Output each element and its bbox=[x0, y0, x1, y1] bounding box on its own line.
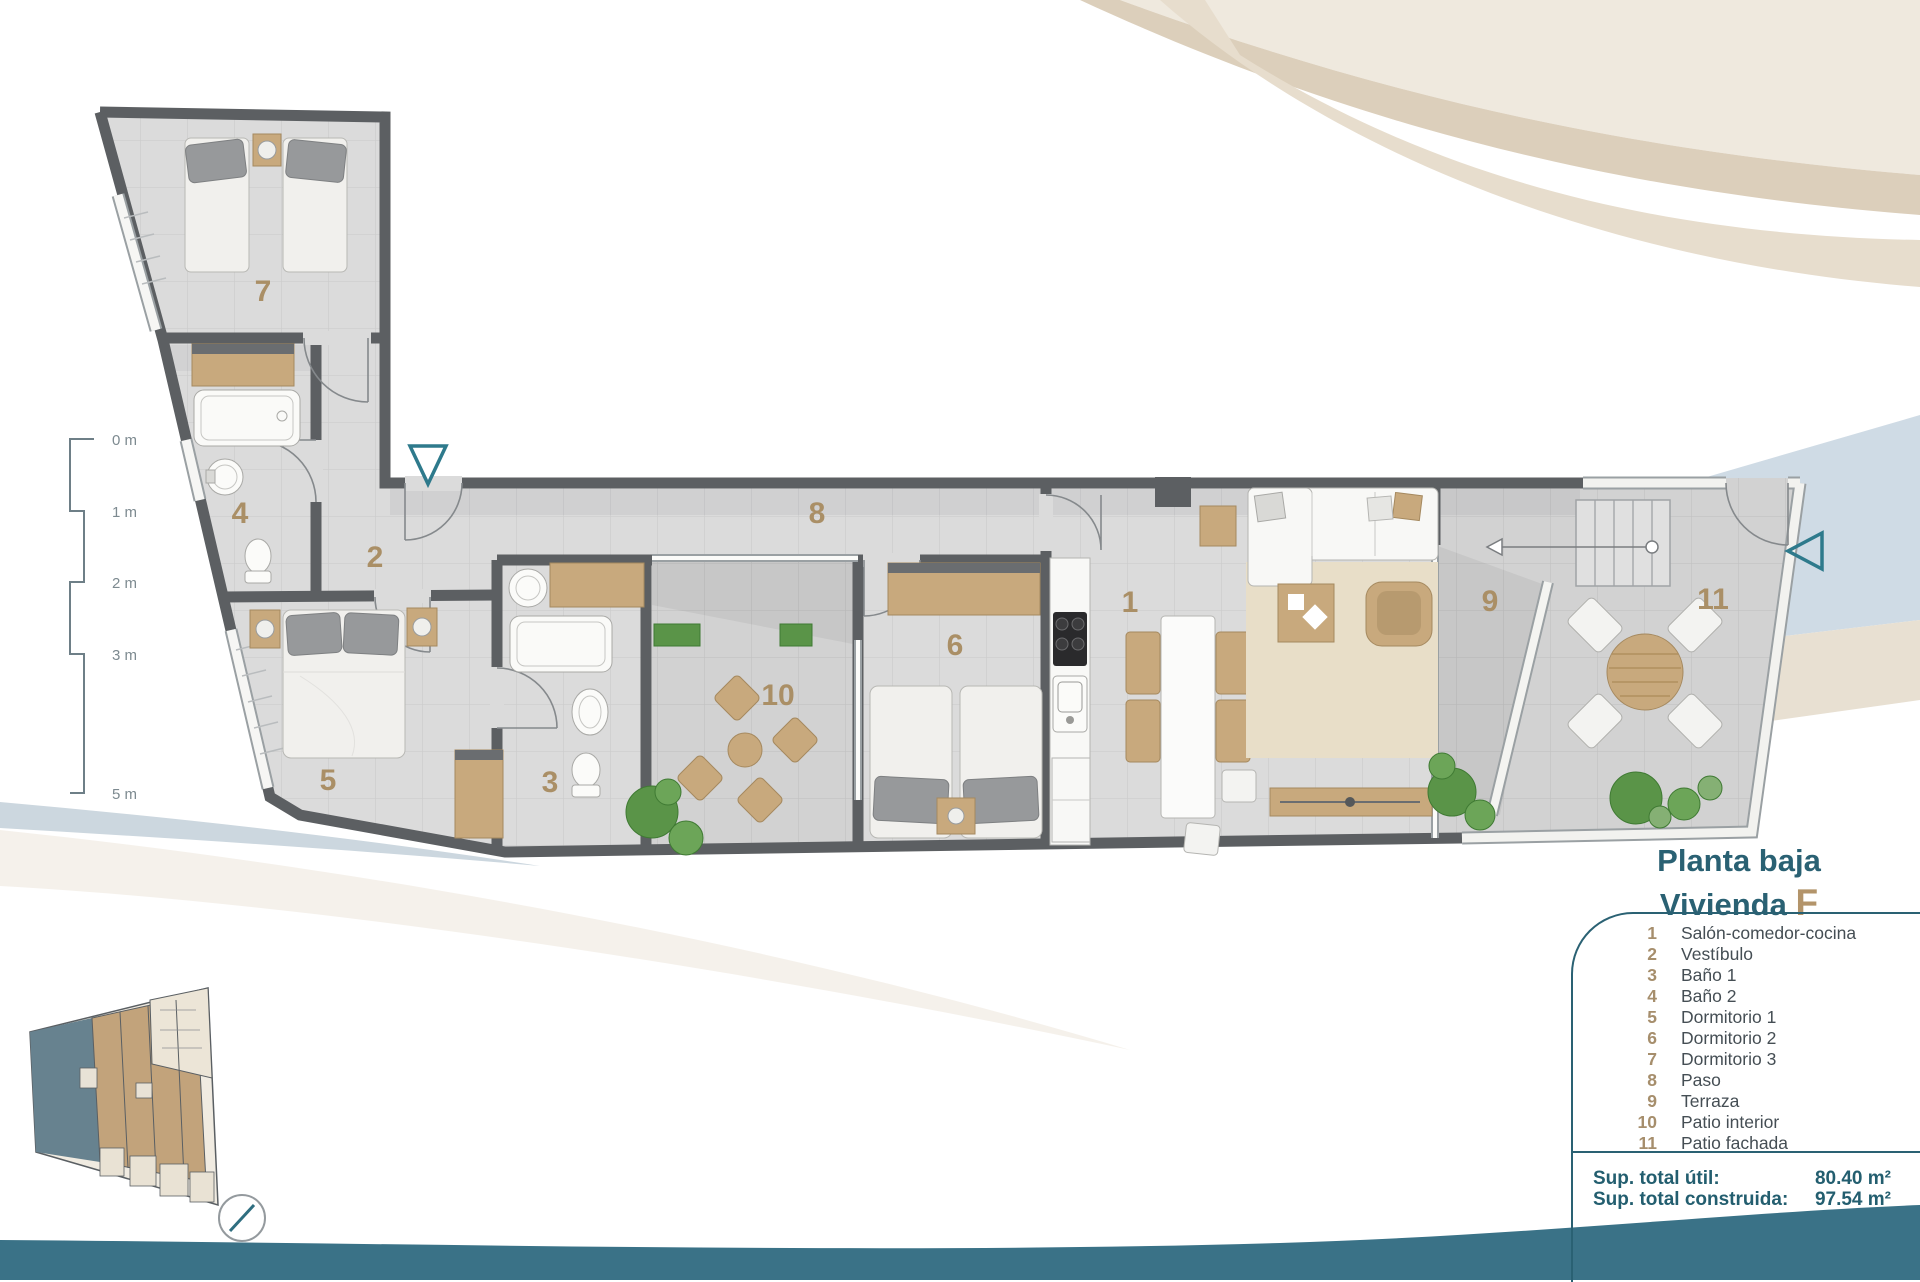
total-built-value: 97.54 m² bbox=[1815, 1189, 1891, 1210]
legend-item: 9Terraza bbox=[1571, 1091, 1911, 1112]
legend-item-number: 3 bbox=[1571, 965, 1681, 986]
key-plan-highlighted-unit bbox=[30, 1018, 100, 1162]
total-built-label: Sup. total construida: bbox=[1593, 1189, 1788, 1210]
total-util-label: Sup. total útil: bbox=[1593, 1168, 1720, 1189]
wardrobe bbox=[455, 750, 503, 838]
lamp bbox=[948, 808, 964, 824]
legend-item-label: Patio interior bbox=[1681, 1112, 1779, 1133]
legend-separator bbox=[1571, 1151, 1920, 1153]
legend-item: 2Vestíbulo bbox=[1571, 944, 1911, 965]
coffee-table bbox=[1278, 584, 1334, 642]
legend-item-number: 7 bbox=[1571, 1049, 1681, 1070]
stairs-start-dot bbox=[1646, 541, 1658, 553]
round-table bbox=[1607, 634, 1683, 710]
page-title: Planta baja bbox=[1555, 842, 1920, 879]
legend-item: 3Baño 1 bbox=[1571, 965, 1911, 986]
total-util-value: 80.40 m² bbox=[1815, 1168, 1891, 1189]
patio-table bbox=[728, 733, 762, 767]
plant bbox=[655, 779, 681, 805]
scale-label-5: 5 m bbox=[112, 786, 137, 803]
plant bbox=[1668, 788, 1700, 820]
dining-chair bbox=[1216, 632, 1250, 694]
legend-item: 4Baño 2 bbox=[1571, 986, 1911, 1007]
legend-item-number: 6 bbox=[1571, 1028, 1681, 1049]
legend-item-label: Dormitorio 3 bbox=[1681, 1049, 1776, 1070]
lamp bbox=[413, 618, 431, 636]
legend-item-label: Dormitorio 1 bbox=[1681, 1007, 1776, 1028]
room-label-4: 4 bbox=[232, 497, 249, 530]
dining-chair bbox=[1126, 632, 1160, 694]
legend-item-label: Salón-comedor-cocina bbox=[1681, 923, 1856, 944]
legend-item-number: 9 bbox=[1571, 1091, 1681, 1112]
legend-item: 10Patio interior bbox=[1571, 1112, 1911, 1133]
pillow bbox=[286, 612, 343, 656]
pillow bbox=[343, 613, 399, 656]
room-label-5: 5 bbox=[320, 764, 337, 797]
toilet bbox=[245, 539, 271, 573]
floorplan-page: { "title": { "floor": "Planta baja", "dw… bbox=[0, 0, 1920, 1280]
dining-chair bbox=[1126, 700, 1160, 762]
pillow bbox=[285, 139, 347, 183]
lamp bbox=[258, 141, 276, 159]
legend-item: 5Dormitorio 1 bbox=[1571, 1007, 1911, 1028]
dining-table bbox=[1161, 616, 1215, 818]
room-label-1: 1 bbox=[1122, 586, 1139, 619]
scale-label-2: 2 m bbox=[112, 575, 137, 592]
key-plan bbox=[30, 988, 218, 1205]
legend-item-label: Dormitorio 2 bbox=[1681, 1028, 1776, 1049]
scale-label-3: 3 m bbox=[112, 647, 137, 664]
dining-chair-white bbox=[1222, 770, 1256, 802]
cushion bbox=[1393, 493, 1423, 521]
legend-item-number: 2 bbox=[1571, 944, 1681, 965]
legend-item-number: 1 bbox=[1571, 923, 1681, 944]
room-label-8: 8 bbox=[809, 497, 826, 530]
legend-item-number: 10 bbox=[1571, 1112, 1681, 1133]
legend-item-label: Vestíbulo bbox=[1681, 944, 1753, 965]
room-label-10: 10 bbox=[761, 679, 794, 712]
scale-label-1: 1 m bbox=[112, 504, 137, 521]
legend-item: 6Dormitorio 2 bbox=[1571, 1028, 1911, 1049]
room-label-7: 7 bbox=[255, 275, 272, 308]
legend-item-label: Baño 1 bbox=[1681, 965, 1736, 986]
bath-counter bbox=[550, 563, 644, 607]
legend-item-number: 4 bbox=[1571, 986, 1681, 1007]
legend-item: 1Salón-comedor-cocina bbox=[1571, 923, 1911, 944]
planter-box bbox=[654, 624, 700, 646]
cushion bbox=[1367, 496, 1393, 521]
area-totals: Sup. total útil: 80.40 m² Sup. total con… bbox=[1593, 1168, 1891, 1210]
scale-label-0: 0 m bbox=[112, 432, 137, 449]
room-label-6: 6 bbox=[947, 629, 964, 662]
washing-machine bbox=[509, 569, 547, 607]
legend-item-label: Paso bbox=[1681, 1070, 1721, 1091]
legend-item-label: Baño 2 bbox=[1681, 986, 1736, 1007]
floor-plan: 1 2 3 4 5 6 7 8 9 10 11 bbox=[100, 112, 1822, 856]
legend-item-number: 5 bbox=[1571, 1007, 1681, 1028]
scale-bar: 0 m 1 m 2 m 3 m 5 m bbox=[70, 432, 137, 803]
planter-box bbox=[780, 624, 812, 646]
lamp bbox=[256, 620, 274, 638]
plant bbox=[1698, 776, 1722, 800]
room-label-2: 2 bbox=[367, 541, 384, 574]
room-label-9: 9 bbox=[1482, 585, 1499, 618]
bathtub bbox=[510, 616, 612, 672]
dining-chair bbox=[1216, 700, 1250, 762]
wall-pillar bbox=[1155, 477, 1191, 507]
plant bbox=[1649, 806, 1671, 828]
side-table bbox=[1200, 506, 1236, 546]
room-legend: 1Salón-comedor-cocina2Vestíbulo3Baño 14B… bbox=[1571, 923, 1911, 1154]
compass bbox=[219, 1195, 265, 1241]
cushion bbox=[1254, 492, 1285, 522]
pillow bbox=[185, 139, 247, 184]
dining-chair-white bbox=[1184, 822, 1221, 855]
toilet bbox=[572, 753, 600, 787]
legend-item: 7Dormitorio 3 bbox=[1571, 1049, 1911, 1070]
legend-item-label: Terraza bbox=[1681, 1091, 1739, 1112]
legend-item-number: 8 bbox=[1571, 1070, 1681, 1091]
room-label-3: 3 bbox=[542, 766, 559, 799]
kitchen-fixtures bbox=[1050, 558, 1090, 845]
room-label-11: 11 bbox=[1697, 583, 1729, 616]
plant bbox=[669, 821, 703, 855]
legend-item: 8Paso bbox=[1571, 1070, 1911, 1091]
